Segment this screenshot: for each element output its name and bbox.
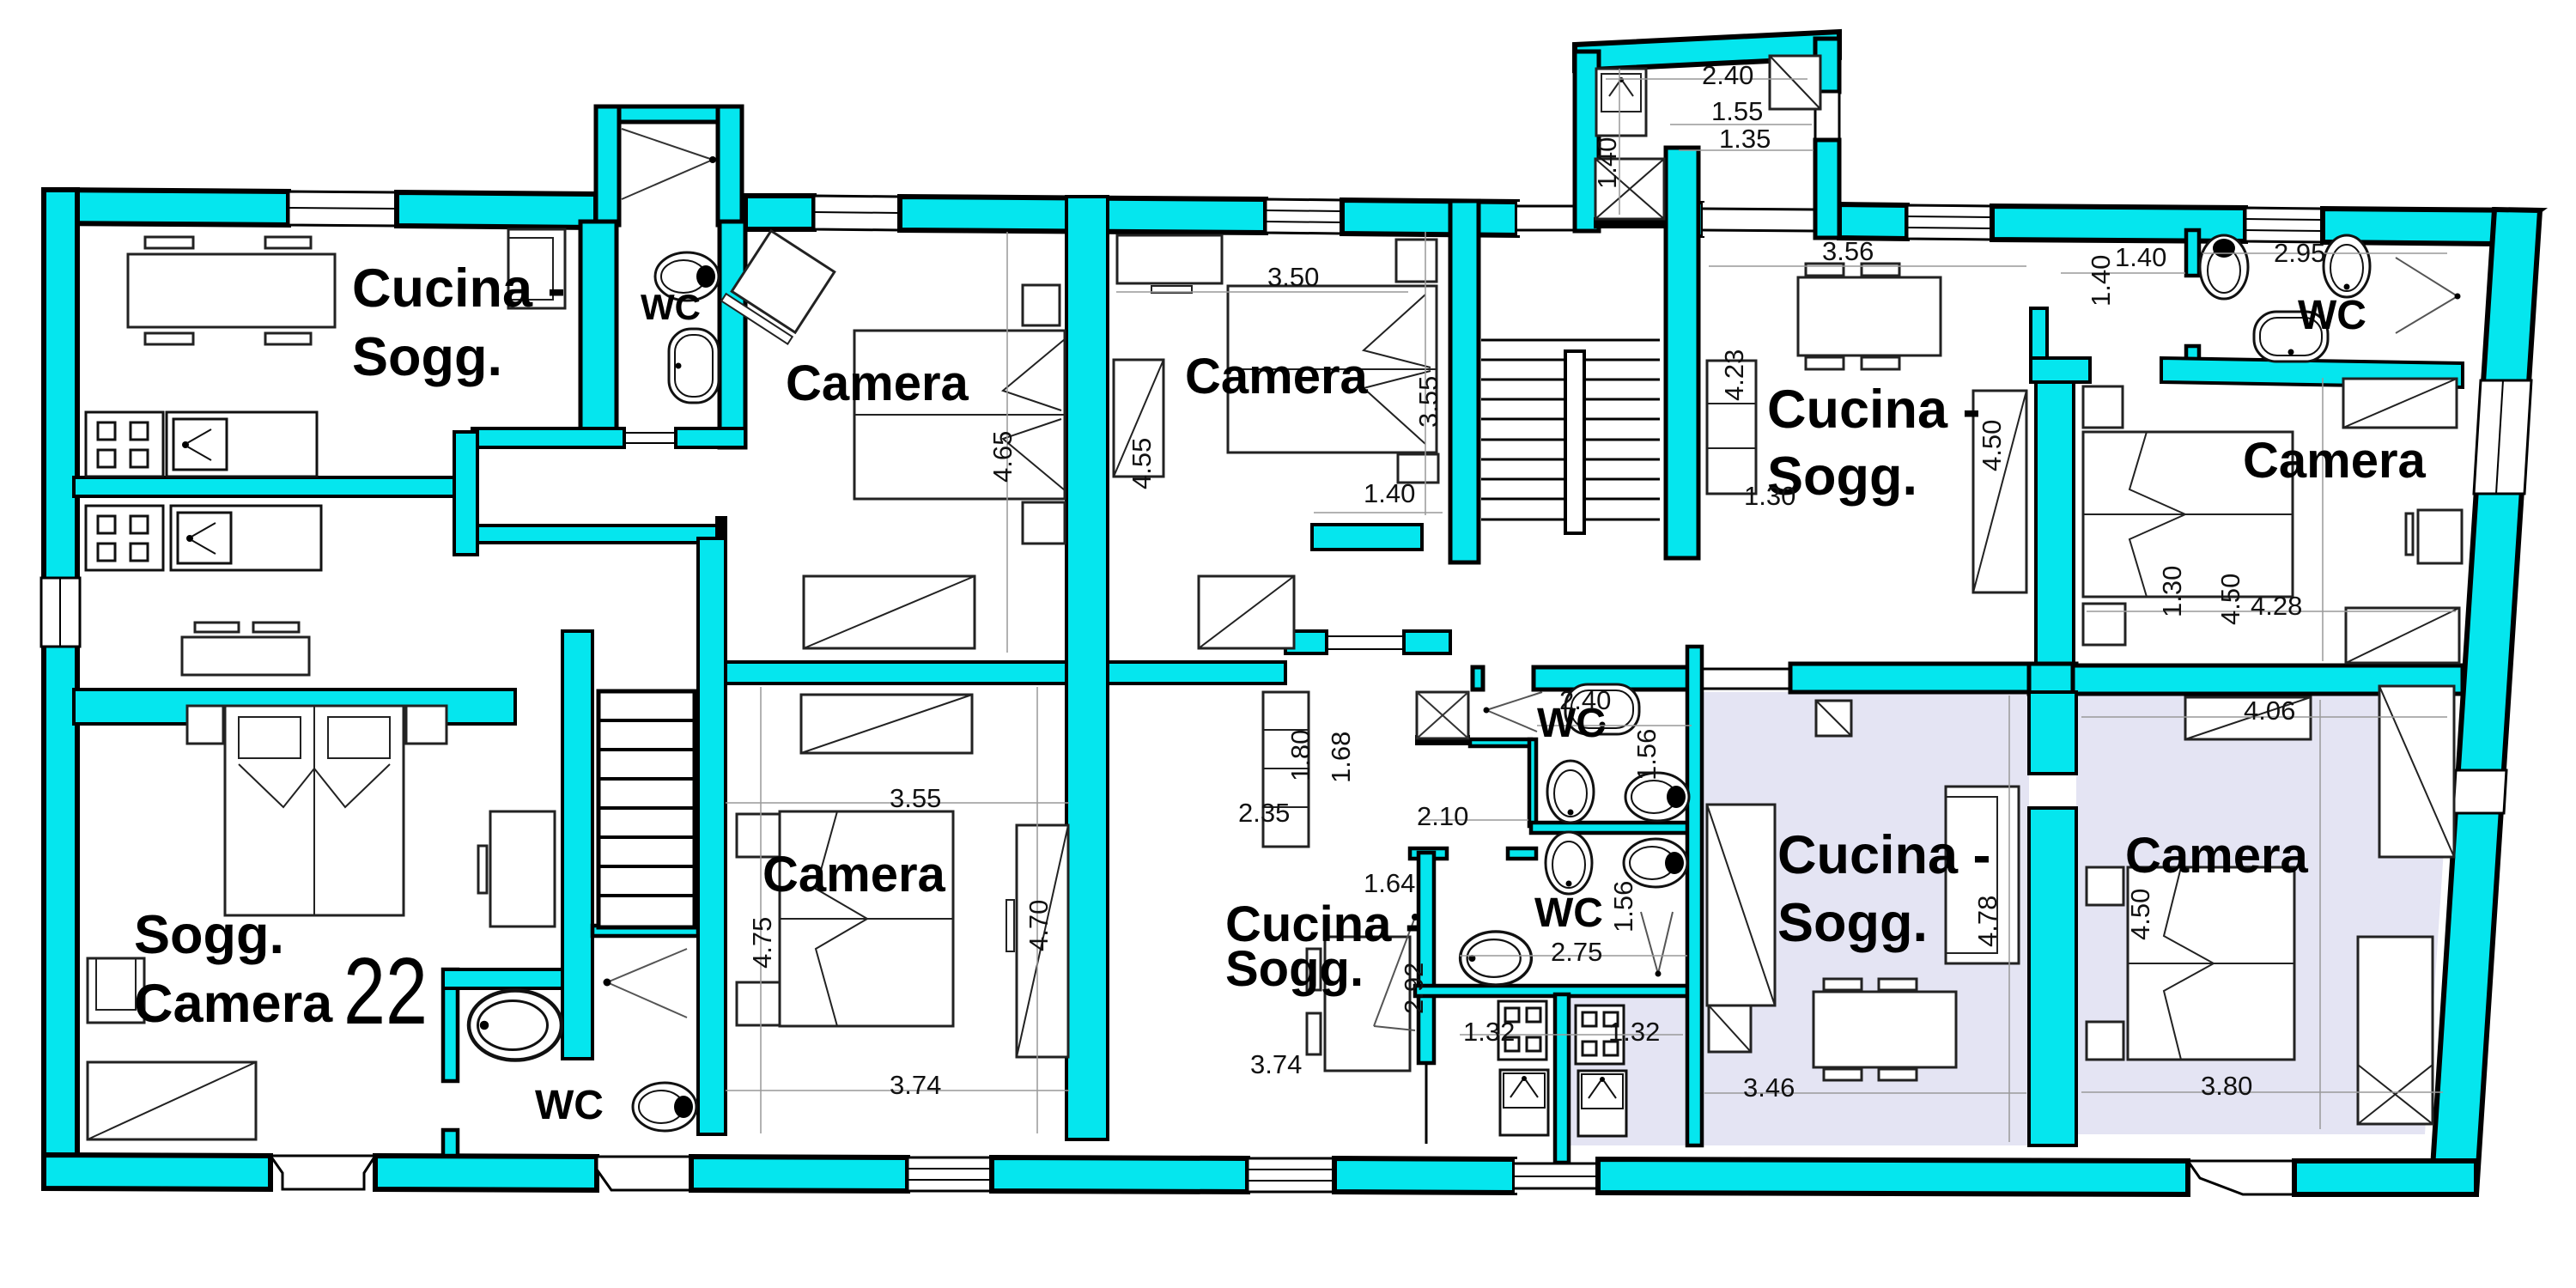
- svg-text:1.40: 1.40: [1364, 478, 1415, 508]
- svg-text:Camera: Camera: [786, 355, 969, 411]
- svg-text:4.65: 4.65: [987, 431, 1018, 483]
- svg-text:4.06: 4.06: [2244, 696, 2295, 726]
- svg-text:4.70: 4.70: [1024, 900, 1054, 951]
- svg-text:1.40: 1.40: [2086, 255, 2116, 307]
- svg-text:2.75: 2.75: [1551, 937, 1602, 967]
- svg-text:4.23: 4.23: [1719, 349, 1749, 401]
- svg-text:WC: WC: [641, 287, 701, 327]
- svg-text:1.68: 1.68: [1326, 732, 1356, 783]
- svg-text:Sogg.: Sogg.: [1225, 941, 1364, 997]
- svg-text:1.56: 1.56: [1608, 881, 1638, 933]
- svg-text:Camera: Camera: [2125, 828, 2309, 884]
- svg-text:3.74: 3.74: [1250, 1049, 1302, 1079]
- svg-text:Sogg.: Sogg.: [134, 905, 284, 965]
- svg-text:1.30: 1.30: [2157, 566, 2187, 617]
- svg-text:Cucina -: Cucina -: [1767, 380, 1981, 440]
- svg-text:Sogg.: Sogg.: [1777, 893, 1928, 953]
- svg-text:1.80: 1.80: [1285, 730, 1315, 781]
- svg-text:2.40: 2.40: [1702, 60, 1753, 90]
- svg-text:3.50: 3.50: [1267, 262, 1319, 292]
- svg-text:1.56: 1.56: [1631, 729, 1662, 781]
- svg-text:1.32: 1.32: [1608, 1017, 1660, 1047]
- svg-text:3.56: 3.56: [1822, 236, 1874, 266]
- svg-text:WC: WC: [2298, 293, 2366, 338]
- svg-text:Cucina -: Cucina -: [352, 258, 566, 319]
- svg-text:2.40: 2.40: [1559, 685, 1611, 715]
- svg-text:4.55: 4.55: [1127, 438, 1157, 489]
- svg-text:2.10: 2.10: [1417, 801, 1468, 831]
- svg-text:4.50: 4.50: [2125, 889, 2155, 940]
- svg-text:1.30: 1.30: [1744, 481, 1795, 511]
- svg-text:Camera: Camera: [762, 847, 946, 902]
- svg-text:Cucina -: Cucina -: [1777, 825, 1991, 885]
- svg-text:2.92: 2.92: [1399, 963, 1429, 1014]
- svg-text:1.35: 1.35: [1719, 124, 1771, 154]
- svg-text:4.78: 4.78: [1972, 896, 2002, 947]
- svg-text:4.50: 4.50: [2215, 574, 2245, 625]
- svg-text:WC: WC: [1534, 890, 1603, 936]
- svg-text:3.55: 3.55: [890, 783, 941, 813]
- svg-text:Camera: Camera: [2243, 433, 2427, 489]
- svg-text:2.35: 2.35: [1238, 798, 1290, 828]
- svg-text:WC: WC: [535, 1083, 604, 1128]
- svg-text:3.74: 3.74: [890, 1070, 941, 1100]
- svg-text:1.40: 1.40: [2115, 242, 2166, 272]
- svg-text:1.64: 1.64: [1364, 868, 1415, 898]
- svg-text:Camera: Camera: [134, 974, 333, 1034]
- svg-text:1.32: 1.32: [1463, 1017, 1515, 1047]
- svg-text:3.55: 3.55: [1413, 376, 1443, 428]
- svg-text:2.95: 2.95: [2274, 238, 2325, 268]
- svg-text:Camera: Camera: [1185, 349, 1369, 404]
- svg-text:4.75: 4.75: [747, 917, 777, 969]
- svg-text:22: 22: [343, 939, 428, 1044]
- svg-text:4.28: 4.28: [2251, 591, 2302, 621]
- svg-text:4.50: 4.50: [1977, 420, 2007, 471]
- svg-text:3.46: 3.46: [1743, 1072, 1795, 1103]
- svg-text:Sogg.: Sogg.: [352, 327, 502, 387]
- svg-text:1.40: 1.40: [1592, 137, 1622, 189]
- svg-text:3.80: 3.80: [2201, 1071, 2252, 1101]
- svg-text:1.55: 1.55: [1711, 96, 1763, 126]
